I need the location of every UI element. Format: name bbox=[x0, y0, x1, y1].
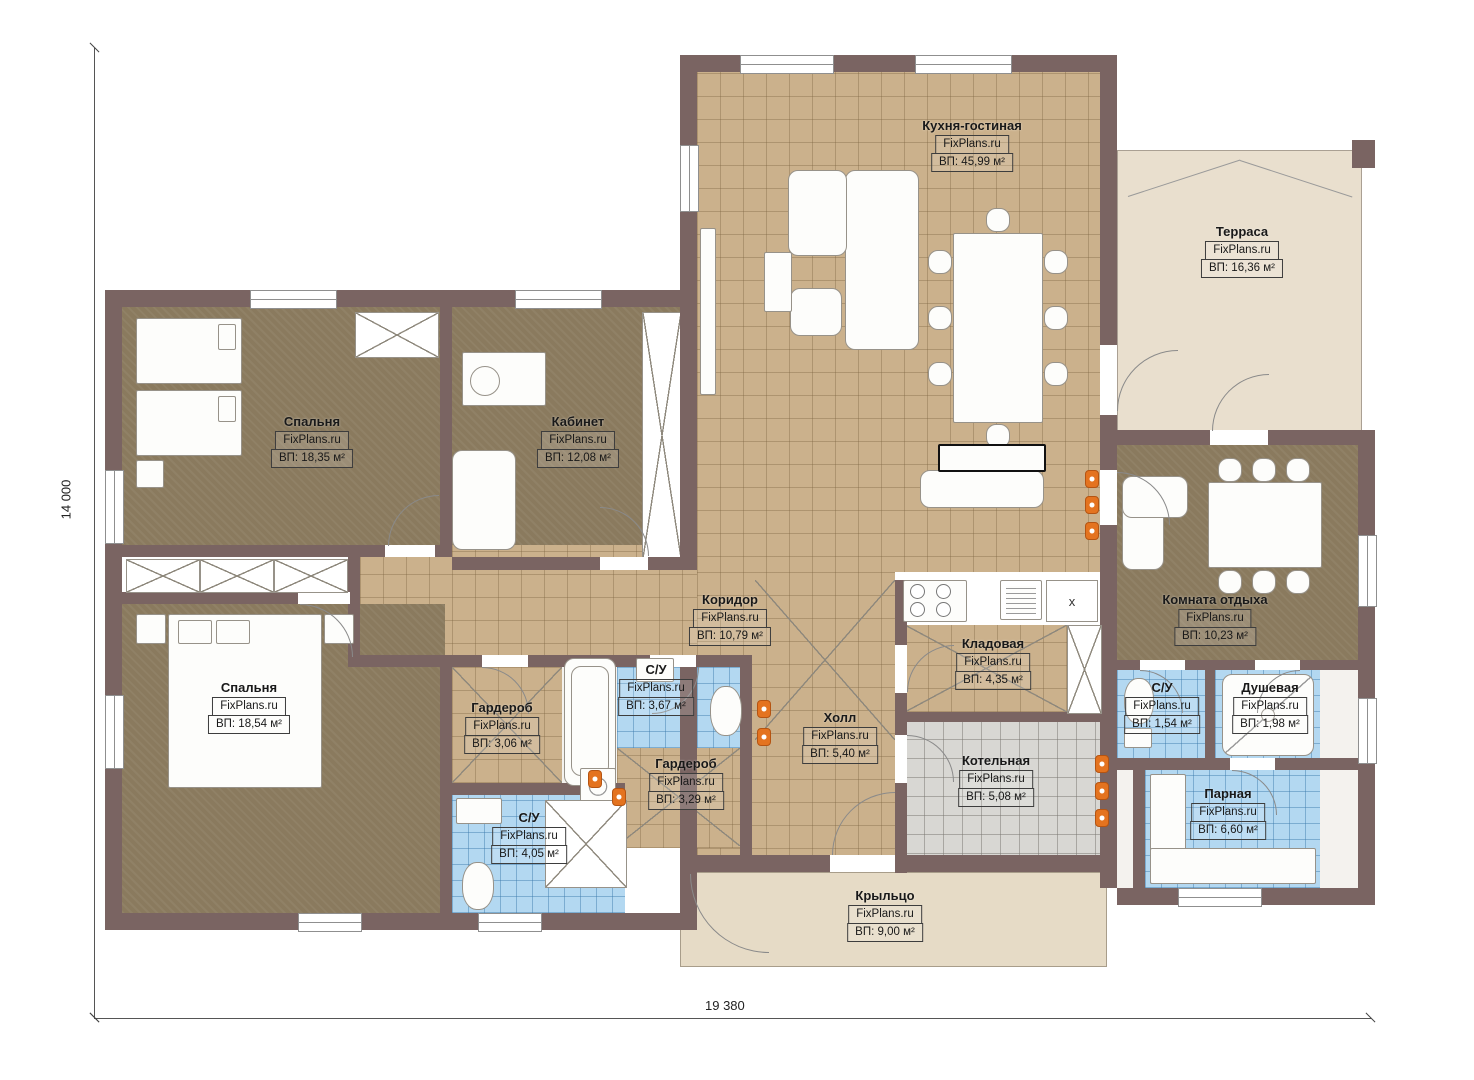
wall bbox=[105, 913, 697, 930]
furniture-dining-table bbox=[953, 233, 1043, 423]
radiator-icon bbox=[612, 788, 626, 806]
room-area: ВП: 9,00 м² bbox=[847, 923, 923, 942]
room-brand: FixPlans.ru bbox=[848, 905, 922, 924]
radiator-icon bbox=[757, 700, 771, 718]
furniture-coffee-table bbox=[764, 252, 792, 312]
room-area: ВП: 4,35 м² bbox=[955, 671, 1031, 690]
room-brand: FixPlans.ru bbox=[275, 431, 349, 450]
room-label-corridor: Коридор FixPlans.ru ВП: 10,79 м² bbox=[689, 592, 771, 646]
furniture-chair bbox=[928, 250, 952, 274]
door-opening bbox=[1210, 430, 1268, 445]
furniture-rest-table bbox=[1208, 482, 1322, 568]
room-area: ВП: 3,06 м² bbox=[464, 735, 540, 754]
window bbox=[478, 913, 542, 932]
room-area: ВП: 5,40 м² bbox=[802, 745, 878, 764]
wall bbox=[440, 307, 452, 557]
room-label-boiler: Котельная FixPlans.ru ВП: 5,08 м² bbox=[958, 753, 1034, 807]
room-name: Кладовая bbox=[962, 636, 1024, 651]
radiator-icon bbox=[1085, 522, 1099, 540]
room-area: ВП: 4,05 м² bbox=[491, 845, 567, 864]
door-opening bbox=[298, 592, 350, 604]
floor-shower-side bbox=[1320, 670, 1358, 760]
room-brand: FixPlans.ru bbox=[1191, 803, 1265, 822]
window bbox=[680, 145, 699, 212]
room-area: ВП: 10,79 м² bbox=[689, 627, 771, 646]
window bbox=[105, 470, 124, 544]
radiator-icon bbox=[757, 728, 771, 746]
radiator-icon bbox=[1085, 496, 1099, 514]
stove-burner-icon bbox=[910, 584, 925, 599]
door-opening bbox=[1140, 660, 1185, 670]
room-brand: FixPlans.ru bbox=[212, 697, 286, 716]
room-name: С/У bbox=[1151, 680, 1172, 695]
wall bbox=[1358, 430, 1375, 905]
closet-bedroom-1 bbox=[355, 312, 439, 358]
furniture-sauna-bench bbox=[1150, 848, 1316, 884]
room-brand: FixPlans.ru bbox=[492, 827, 566, 846]
dimension-height-label: 14 000 bbox=[58, 480, 73, 520]
room-label-kitchen-living: Кухня-гостиная FixPlans.ru ВП: 45,99 м² bbox=[922, 118, 1022, 172]
room-area: ВП: 1,54 м² bbox=[1124, 715, 1200, 734]
room-label-hall: Холл FixPlans.ru ВП: 5,40 м² bbox=[802, 710, 878, 764]
wall bbox=[452, 557, 697, 570]
room-name: Крыльцо bbox=[855, 888, 914, 903]
closet-hatch-office bbox=[642, 312, 682, 559]
room-name: Гардероб bbox=[655, 756, 716, 771]
door-opening bbox=[482, 655, 528, 667]
room-label-wc-3: С/У FixPlans.ru ВП: 1,54 м² bbox=[1124, 680, 1200, 734]
room-area: ВП: 16,36 м² bbox=[1201, 259, 1283, 278]
room-name: С/У bbox=[645, 662, 666, 677]
wall bbox=[105, 290, 122, 930]
furniture-chair bbox=[928, 306, 952, 330]
stove-burner-icon bbox=[936, 602, 951, 617]
room-brand: FixPlans.ru bbox=[1125, 697, 1199, 716]
wall bbox=[895, 580, 907, 873]
room-name: Котельная bbox=[962, 753, 1030, 768]
door-opening bbox=[830, 855, 895, 872]
furniture-nightstand bbox=[136, 460, 164, 488]
dimension-line-horizontal bbox=[94, 1018, 1371, 1019]
furniture-office-sofa bbox=[452, 450, 516, 550]
window bbox=[1358, 535, 1377, 607]
closet-pantry-side bbox=[1067, 625, 1102, 714]
furniture-sofa bbox=[845, 170, 919, 350]
window bbox=[105, 695, 124, 769]
room-area: ВП: 10,23 м² bbox=[1174, 627, 1256, 646]
radiator-icon bbox=[1095, 809, 1109, 827]
door-opening bbox=[895, 735, 907, 783]
room-brand: FixPlans.ru bbox=[956, 653, 1030, 672]
room-brand: FixPlans.ru bbox=[619, 679, 693, 698]
furniture-chair bbox=[928, 362, 952, 386]
kitchen-x-symbol: x bbox=[1046, 580, 1098, 622]
room-name: Парная bbox=[1204, 786, 1251, 801]
room-label-terrace: Терраса FixPlans.ru ВП: 16,36 м² bbox=[1201, 224, 1283, 278]
radiator-icon bbox=[1095, 755, 1109, 773]
room-name: Гардероб bbox=[471, 700, 532, 715]
wall bbox=[1205, 670, 1215, 760]
wall bbox=[105, 290, 697, 307]
room-area: ВП: 3,67 м² bbox=[618, 697, 694, 716]
room-label-office: Кабинет FixPlans.ru ВП: 12,08 м² bbox=[537, 414, 619, 468]
room-area: ВП: 6,60 м² bbox=[1190, 821, 1266, 840]
room-area: ВП: 1,98 м² bbox=[1232, 715, 1308, 734]
furniture-tv-unit bbox=[700, 228, 716, 395]
room-name: Холл bbox=[824, 710, 857, 725]
room-name: Комната отдыха bbox=[1162, 592, 1267, 607]
furniture-chair bbox=[1044, 306, 1068, 330]
room-brand: FixPlans.ru bbox=[935, 135, 1009, 154]
furniture-armchair bbox=[790, 288, 842, 336]
room-brand: FixPlans.ru bbox=[693, 609, 767, 628]
furniture-pillow bbox=[178, 620, 212, 644]
wall bbox=[1352, 140, 1375, 168]
stove-burner-icon bbox=[910, 602, 925, 617]
room-label-wardrobe-2: Гардероб FixPlans.ru ВП: 3,29 м² bbox=[648, 756, 724, 810]
x-symbol-label: x bbox=[1069, 594, 1076, 609]
window bbox=[298, 913, 362, 932]
floor-plan-canvas: x Кухня-гостиная Fi bbox=[0, 0, 1474, 1080]
furniture-pillow bbox=[218, 324, 236, 350]
room-name: Кабинет bbox=[552, 414, 605, 429]
door-opening bbox=[1100, 470, 1117, 525]
room-area: ВП: 3,29 м² bbox=[648, 791, 724, 810]
radiator-icon bbox=[1095, 782, 1109, 800]
room-label-bedroom-2: Спальня FixPlans.ru ВП: 18,54 м² bbox=[208, 680, 290, 734]
radiator-icon bbox=[1085, 470, 1099, 488]
door-opening bbox=[1230, 758, 1275, 770]
room-label-wc-2: С/У FixPlans.ru ВП: 4,05 м² bbox=[491, 810, 567, 864]
window bbox=[1358, 698, 1377, 764]
room-name: Коридор bbox=[702, 592, 758, 607]
room-label-wardrobe-1: Гардероб FixPlans.ru ВП: 3,06 м² bbox=[464, 700, 540, 754]
window bbox=[915, 55, 1012, 74]
fixture-toilet bbox=[462, 862, 494, 910]
furniture-chair bbox=[1286, 570, 1310, 594]
room-name: Терраса bbox=[1216, 224, 1268, 239]
room-label-sauna: Парная FixPlans.ru ВП: 6,60 м² bbox=[1190, 786, 1266, 840]
room-name: Спальня bbox=[284, 414, 340, 429]
fixture-bathtub-inner bbox=[571, 666, 609, 776]
door-opening bbox=[385, 545, 435, 557]
window bbox=[740, 55, 834, 74]
room-label-rest-room: Комната отдыха FixPlans.ru ВП: 10,23 м² bbox=[1162, 592, 1267, 646]
wall bbox=[680, 307, 697, 570]
window bbox=[250, 290, 337, 309]
room-brand: FixPlans.ru bbox=[465, 717, 539, 736]
room-area: ВП: 18,35 м² bbox=[271, 449, 353, 468]
closet-corridor bbox=[200, 559, 274, 593]
window bbox=[1178, 888, 1262, 907]
closet-corridor bbox=[126, 559, 200, 593]
room-label-shower: Душевая FixPlans.ru ВП: 1,98 м² bbox=[1232, 680, 1308, 734]
room-area: ВП: 5,08 м² bbox=[958, 788, 1034, 807]
room-label-bedroom-1: Спальня FixPlans.ru ВП: 18,35 м² bbox=[271, 414, 353, 468]
room-name: Душевая bbox=[1241, 680, 1298, 695]
wall bbox=[1133, 770, 1145, 888]
stove-burner-icon bbox=[936, 584, 951, 599]
room-brand: FixPlans.ru bbox=[541, 431, 615, 450]
room-area: ВП: 12,08 м² bbox=[537, 449, 619, 468]
fixture-toilet bbox=[710, 686, 742, 736]
closet-corridor bbox=[274, 559, 348, 593]
door-opening bbox=[895, 645, 907, 693]
appliance-dishwasher bbox=[1000, 580, 1042, 620]
door-opening bbox=[600, 557, 648, 570]
room-label-wc-1: С/У FixPlans.ru ВП: 3,67 м² bbox=[618, 662, 694, 716]
furniture-chair bbox=[1218, 570, 1242, 594]
door-opening bbox=[1100, 345, 1117, 415]
room-label-porch: Крыльцо FixPlans.ru ВП: 9,00 м² bbox=[847, 888, 923, 942]
furniture-chair bbox=[1286, 458, 1310, 482]
radiator-icon bbox=[588, 770, 602, 788]
furniture-chair bbox=[986, 208, 1010, 232]
furniture-sofa-chaise bbox=[788, 170, 847, 256]
room-brand: FixPlans.ru bbox=[1178, 609, 1252, 628]
room-name: Спальня bbox=[221, 680, 277, 695]
furniture-chair bbox=[1218, 458, 1242, 482]
room-area: ВП: 18,54 м² bbox=[208, 715, 290, 734]
wall bbox=[740, 655, 752, 855]
furniture-chair bbox=[1044, 362, 1068, 386]
floor-sauna-right bbox=[1320, 770, 1358, 888]
room-brand: FixPlans.ru bbox=[649, 773, 723, 792]
room-name: С/У bbox=[518, 810, 539, 825]
furniture-pillow bbox=[218, 396, 236, 422]
room-brand: FixPlans.ru bbox=[1233, 697, 1307, 716]
furniture-desk-chair bbox=[470, 366, 500, 396]
window bbox=[515, 290, 602, 309]
dimension-width-label: 19 380 bbox=[705, 998, 745, 1013]
furniture-kitchen-island bbox=[920, 470, 1044, 508]
furniture-chair bbox=[1252, 458, 1276, 482]
furniture-pillow bbox=[216, 620, 250, 644]
dimension-line-vertical bbox=[94, 48, 95, 1018]
furniture-chair bbox=[1252, 570, 1276, 594]
room-brand: FixPlans.ru bbox=[959, 770, 1033, 789]
furniture-chair bbox=[1044, 250, 1068, 274]
door-opening bbox=[1255, 660, 1300, 670]
furniture-nightstand bbox=[136, 614, 166, 644]
furniture-counter-black bbox=[938, 444, 1046, 472]
room-area: ВП: 45,99 м² bbox=[931, 153, 1013, 172]
room-label-pantry: Кладовая FixPlans.ru ВП: 4,35 м² bbox=[955, 636, 1031, 690]
room-brand: FixPlans.ru bbox=[1205, 241, 1279, 260]
room-brand: FixPlans.ru bbox=[803, 727, 877, 746]
room-name: Кухня-гостиная bbox=[922, 118, 1022, 133]
